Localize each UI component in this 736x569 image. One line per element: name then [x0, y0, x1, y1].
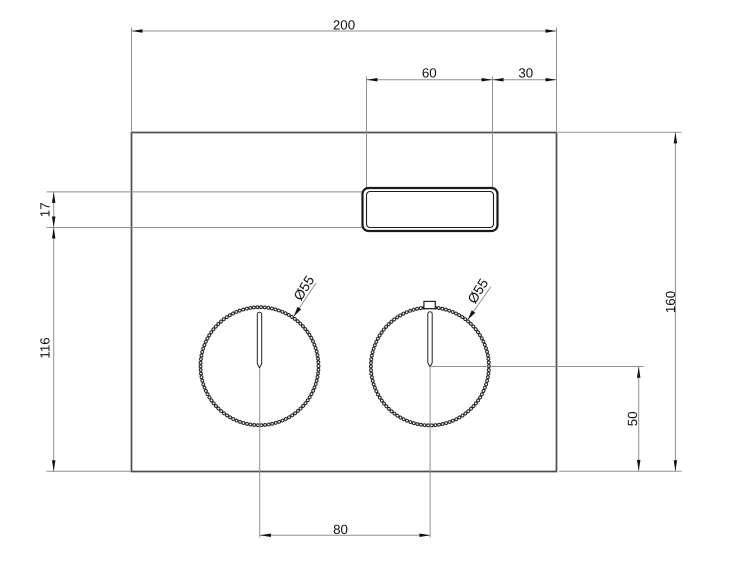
svg-text:200: 200: [333, 17, 355, 32]
svg-text:116: 116: [38, 337, 53, 358]
svg-text:60: 60: [422, 66, 437, 81]
svg-text:17: 17: [38, 202, 53, 217]
svg-text:160: 160: [663, 291, 678, 313]
svg-text:80: 80: [333, 522, 348, 537]
svg-text:30: 30: [518, 66, 533, 81]
svg-text:50: 50: [625, 411, 640, 426]
